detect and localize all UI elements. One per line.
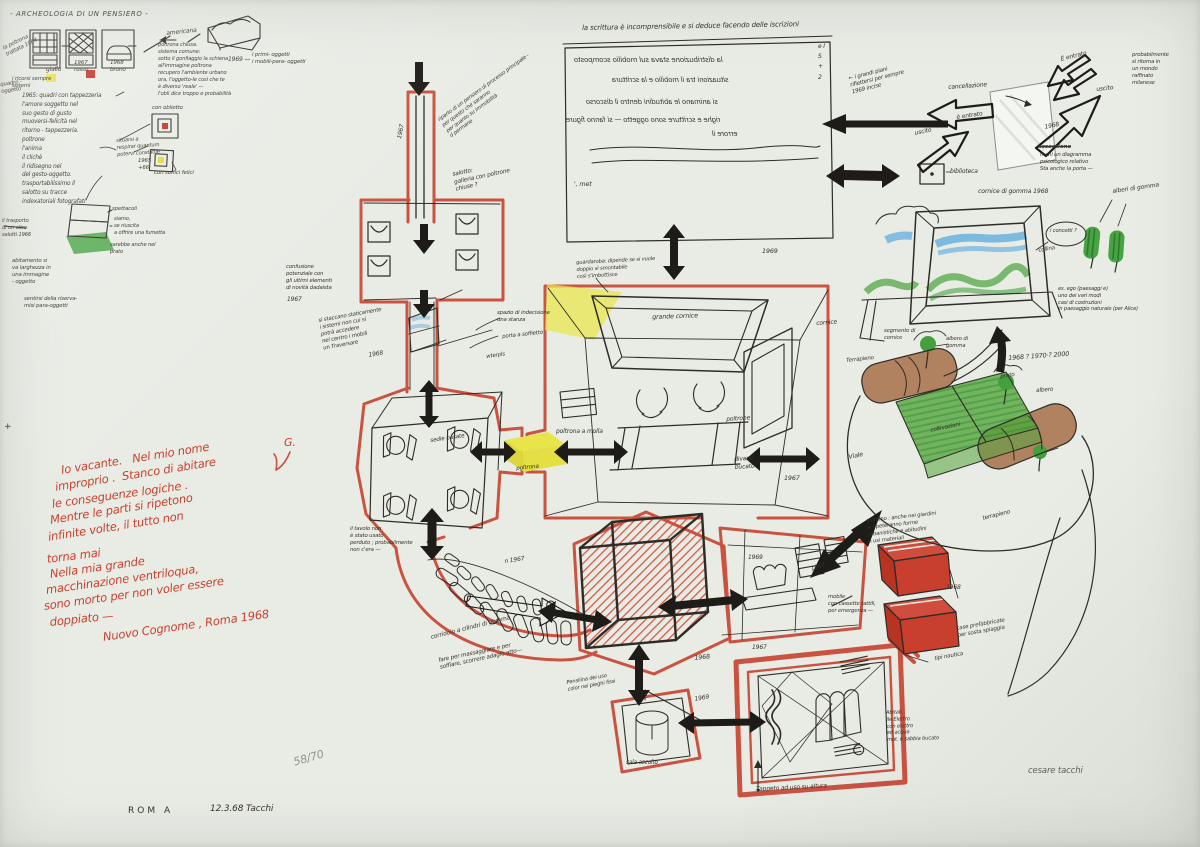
confusione-year: 1967 [287,296,302,304]
laptop-note-2: siamo, se riuscita a offrire una fumetta [114,216,165,236]
rubber-tree-2 [1108,230,1125,263]
plus-mark: + [4,422,11,434]
albero-gomma-label-2: albero di gomma [946,336,968,350]
edge-note-3: i ricorsi sempre sistemi [12,76,51,90]
mirror-line-2: situazioni tra il mobilio e la scrittura [612,76,728,85]
biblioteca-label: biblioteca [950,168,978,176]
sentirsi-note: sentirsi della riserva- misi para-oggett… [24,296,77,310]
artwork-sketch-layer [0,0,1200,847]
confusione-note: confusione potenziale con gli ultimi ele… [286,264,332,292]
plate-inscription: ROM A [128,806,173,818]
square-red-label: con oblietto [152,105,183,112]
mirror-note-met: ', met [574,180,592,188]
diagramma-note: meni un diagramma psicologico relativo S… [1040,152,1093,173]
sofa-year: 1969 — [228,56,250,64]
guardaroba-note: guardaroba: dipende se si vuole doppio s… [576,256,656,280]
cube-year: 1968 [694,652,710,662]
abitH-note: Abitab. ile Elettro con elettro ed acqua… [886,708,939,744]
mirror-side-marks: e I S + 2 [818,42,825,83]
color-crayon-layer [46,70,1125,654]
spazio-note: spazio di indecisione una stanza [497,310,550,324]
mirror-line-5: errore il [712,130,738,139]
eco-note: es. ego (paesaggi e) uno dei vari modi c… [1058,286,1138,313]
mirror-line-1: la distribuzione stava sul mobilio scomp… [574,56,723,65]
chair1-label: giallo [46,66,61,74]
laptop-note-1: spettacoli [112,206,137,213]
albero-label: albero [1036,387,1054,396]
square-years: 1965 +66 [138,158,151,172]
mirror-text-box [563,36,833,242]
pictureH-year: 1967 [752,644,767,652]
chair3-label: 1968 bruno [110,60,126,75]
tavolo-note: il tavolo non è stato usato perduto ; pr… [350,526,413,554]
boxes-year: 1968 [946,584,961,592]
divano-label: divano bucato [734,455,755,472]
probabilmente-note: probabilmente si ritorna in un mondo raf… [1132,52,1169,86]
box-year: 1969 [762,247,778,255]
mirror-line-4: righe e scritture sono oggetto — si fann… [566,116,720,125]
mirror-line-3: si animano le abitudini dentro il discor… [586,98,718,107]
date-inscription: 12.3.68 Tacchi [210,804,273,816]
abitamento-note: abitamento si va larghezza in una immagi… [12,258,51,286]
poem-g-mark: G. [284,436,296,449]
chair2-label: 1967 rosso [74,60,88,75]
roomF-year-1: 1969 [748,554,763,562]
poltrona-molla-label: poltrona a molla [556,428,603,436]
biblioteca-square [920,164,950,184]
divani-cassette-note: mobile con cassette tattili, per emergen… [828,594,876,615]
sofa-note: poltrona chiusa. sistema comune: sotto i… [158,42,231,98]
pencil-signature: cesare tacchi [1028,766,1083,777]
laptop-note-3: sarebbe anche nel prato [110,242,155,256]
title-inscription: - ARCHEOLOGIA DI UN PENSIERO - [10,10,148,19]
sala-ascolto-label: sala ascolto [626,760,658,767]
laptop-left-note: il trasporto di un altro salotti 1966 [2,218,31,238]
roomC-year: 1967 [784,474,800,482]
poltrone-label: poltrone [726,414,750,423]
arrow-entered-top-b [1054,69,1096,100]
column-1965-notes: 1965: quadri con tappezzeria l'amore sog… [22,92,101,207]
segmento-label: segmento di cornice [884,328,915,342]
concept-bubble-text: i concetti ? [1050,228,1077,235]
crossed-word: ossessione [1038,144,1071,151]
arrow-exited-up [918,132,968,172]
rubber-frame-sketch [860,200,1126,341]
cornice-right-label: cornice [816,319,837,328]
grande-cornice-label: grande cornice [652,311,698,321]
sofa-right-note: i primi- oggetti i mobili-para- oggetti [252,52,305,66]
cornice-gomma-label: cornice di gomma 1968 [978,188,1048,196]
roomB-sketch [370,392,502,528]
artwork-scan: - ARCHEOLOGIA DI UN PENSIERO - americana… [0,0,1200,847]
square-mid-note: situarsi a respirar quantum potervi cons… [116,135,160,158]
square-yellow-label: con soffici felici [154,170,194,177]
